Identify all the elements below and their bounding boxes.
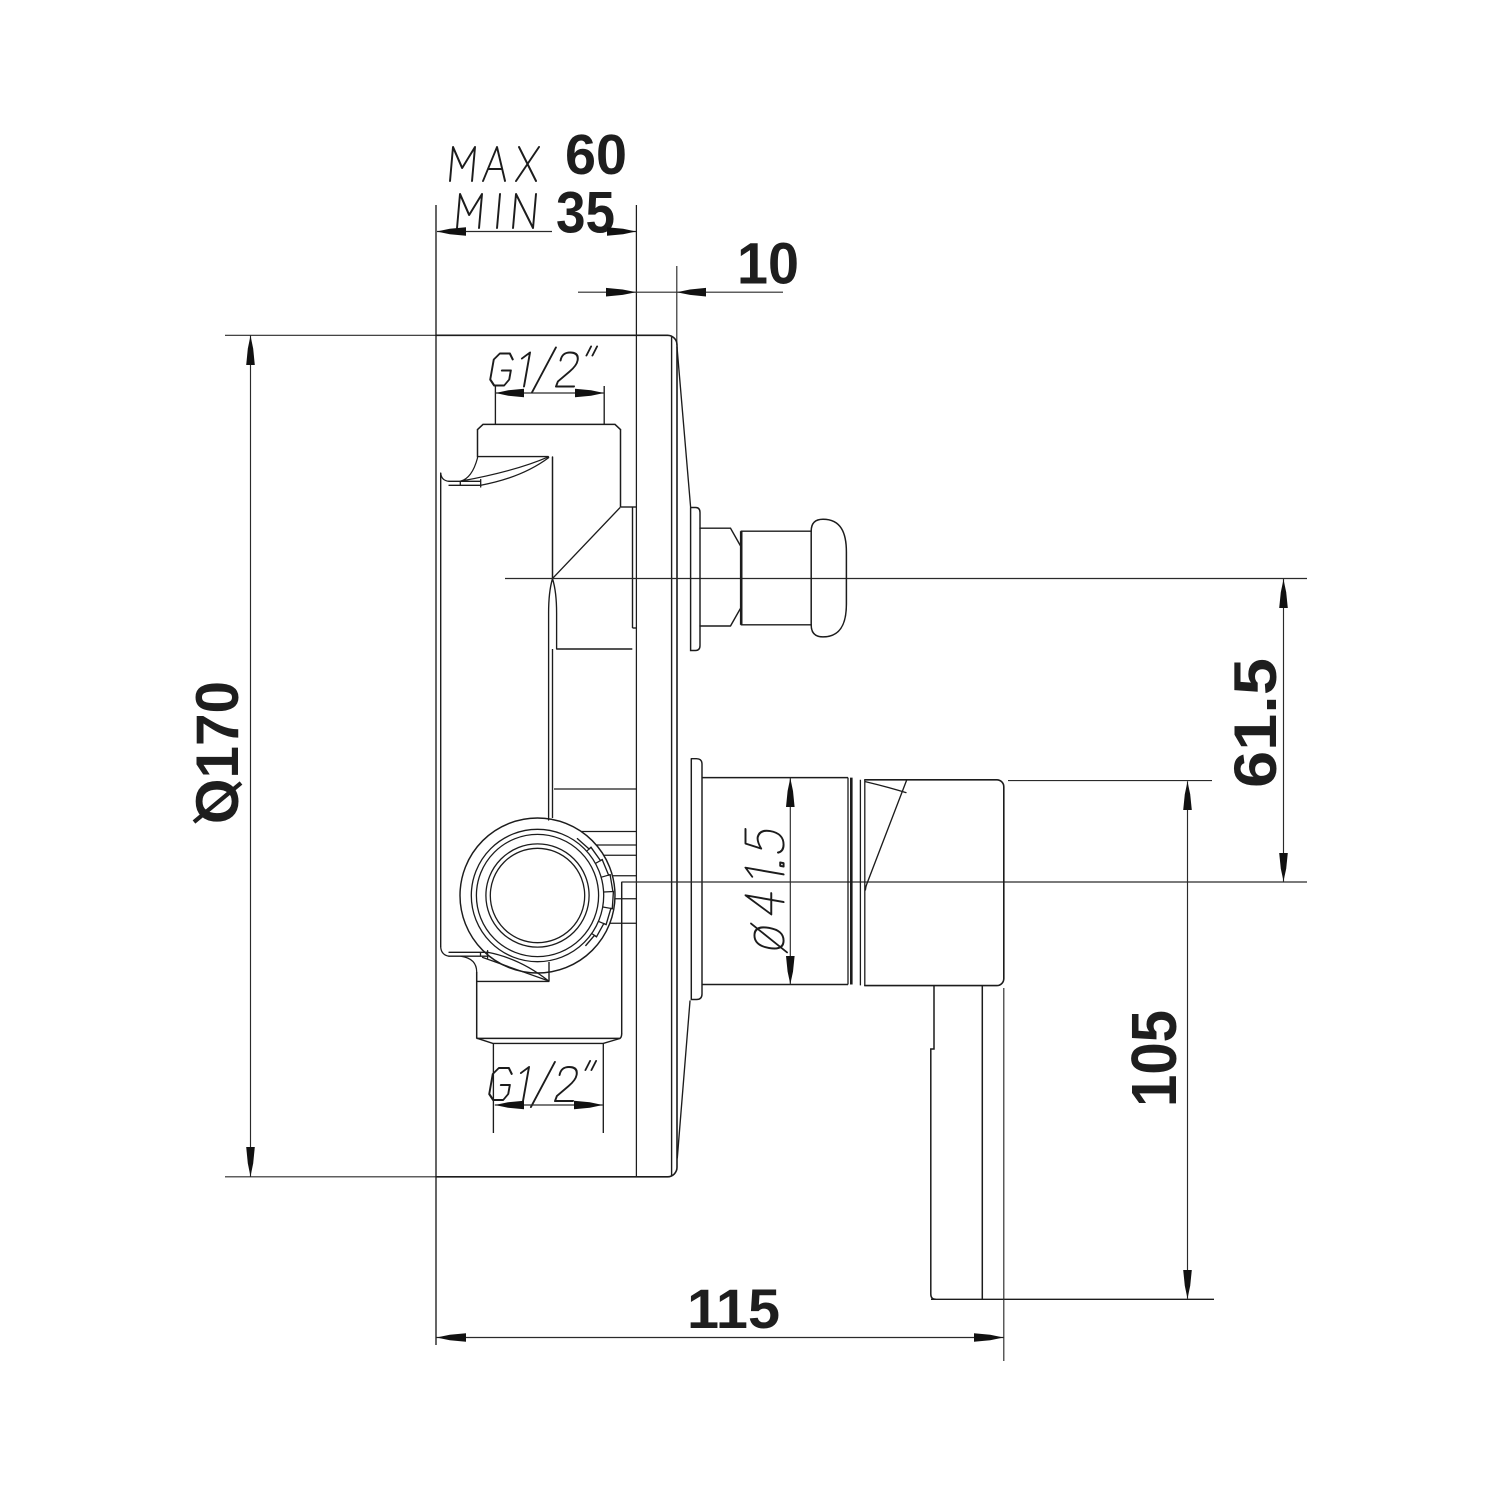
svg-text:61.5: 61.5 [1222,658,1289,788]
svg-text:115: 115 [687,1277,780,1340]
svg-text:35: 35 [556,181,615,246]
svg-text:10: 10 [737,232,799,297]
svg-text:60: 60 [565,123,627,187]
svg-text:105: 105 [1118,1010,1190,1107]
